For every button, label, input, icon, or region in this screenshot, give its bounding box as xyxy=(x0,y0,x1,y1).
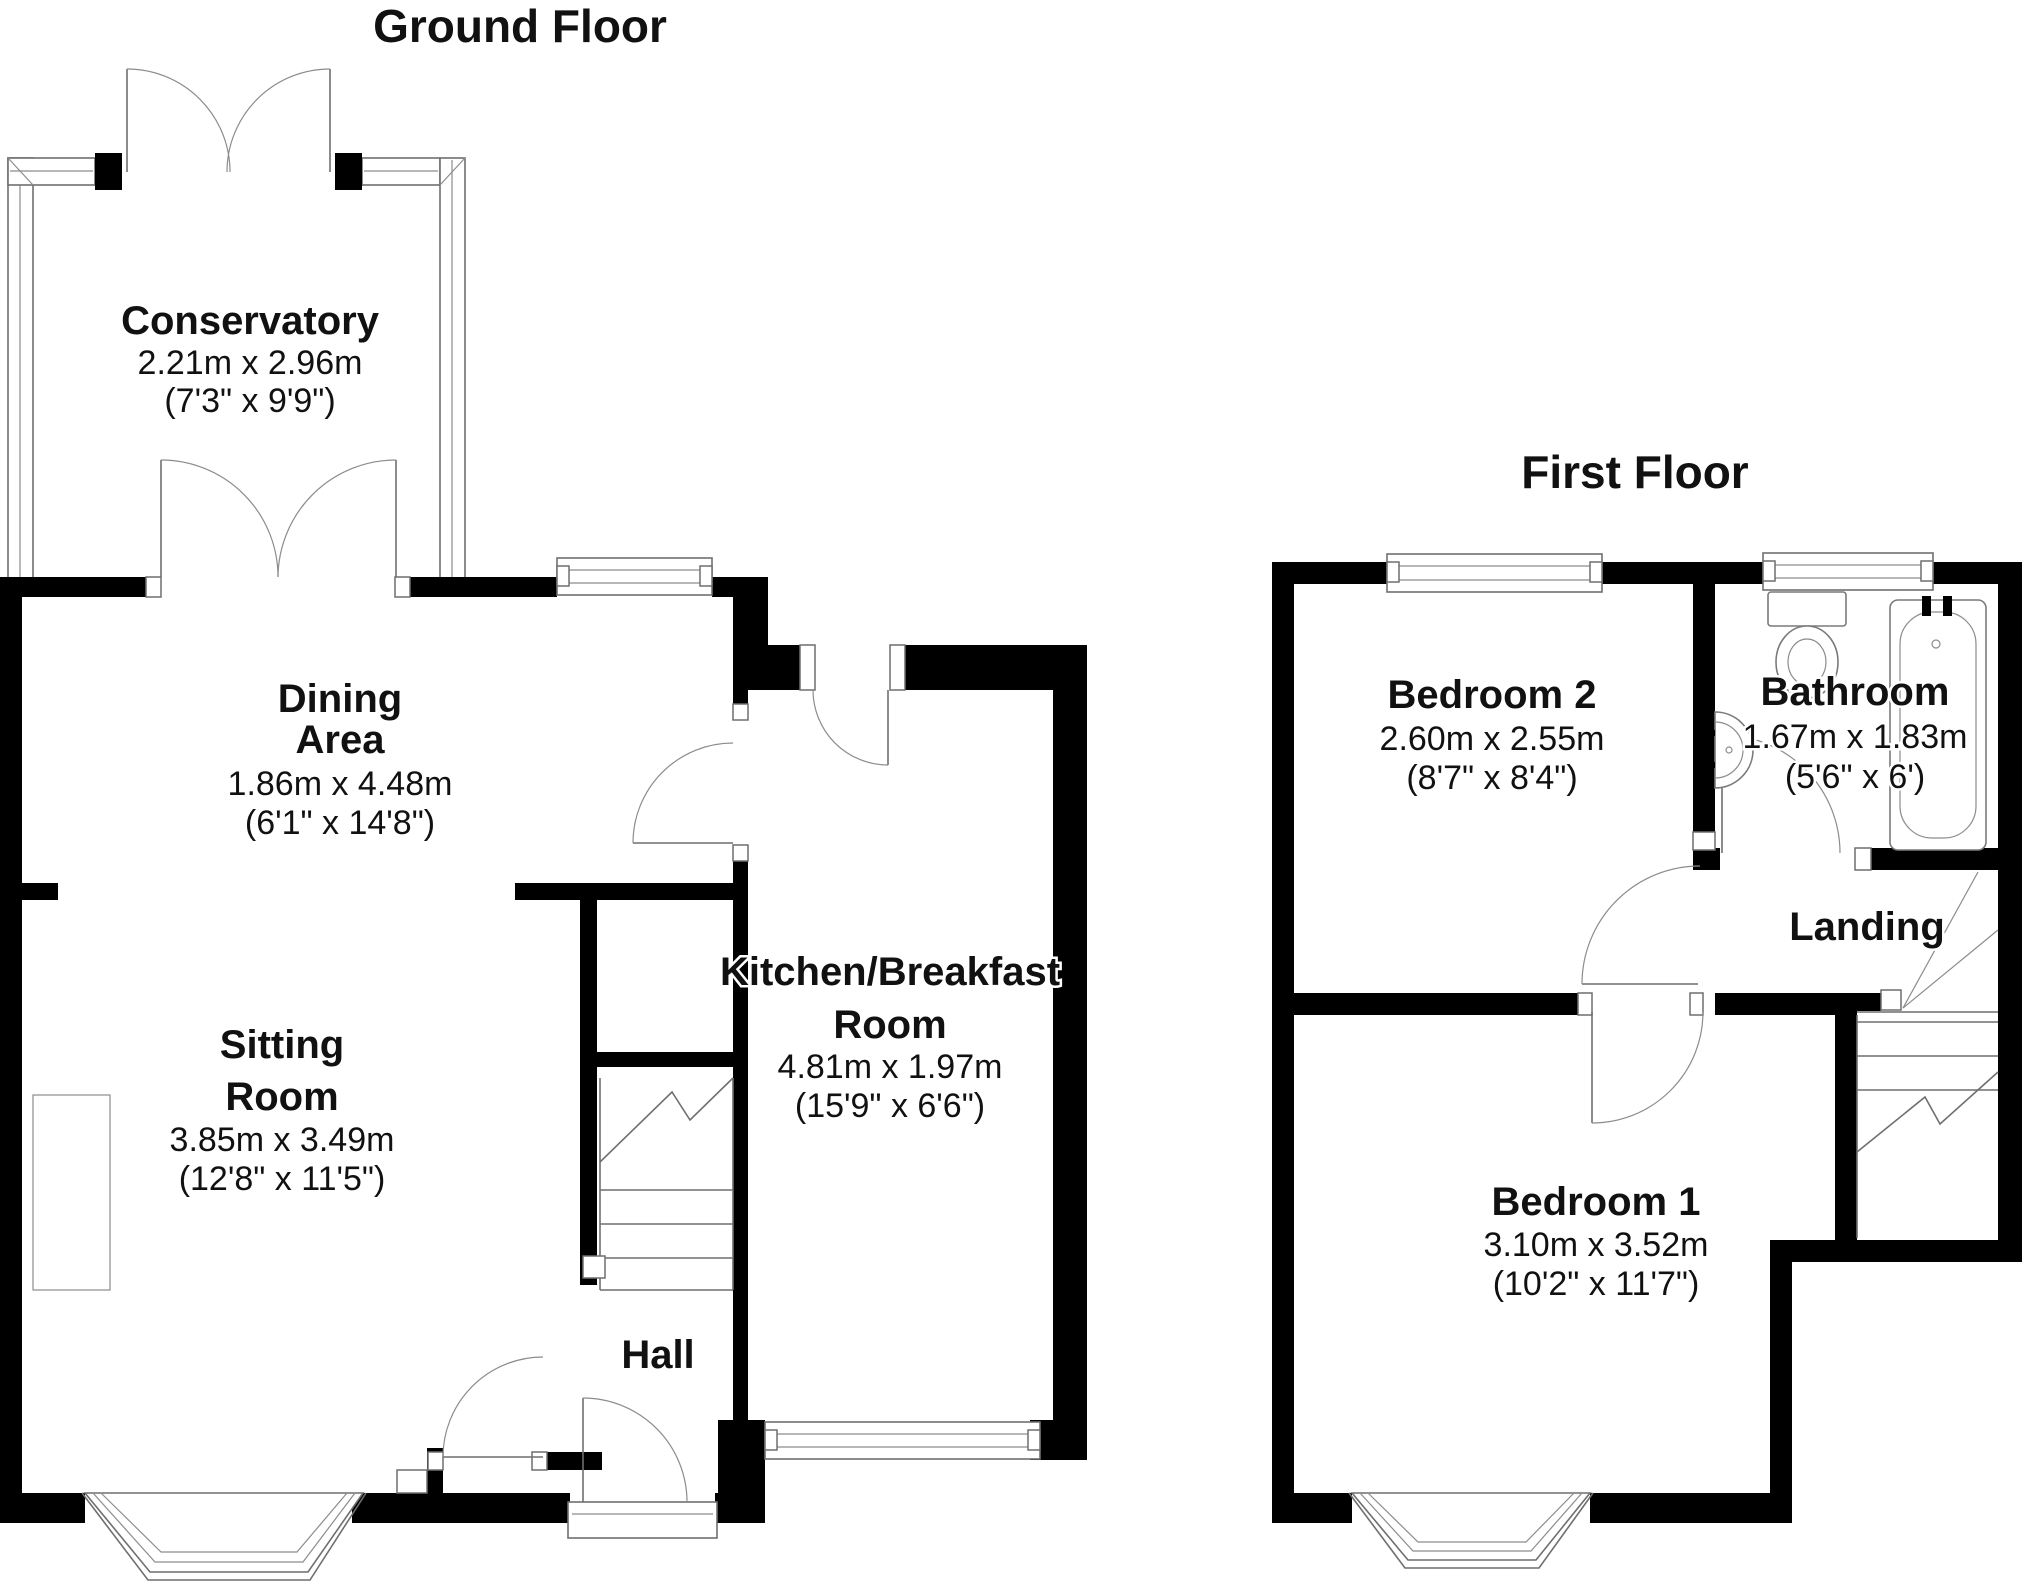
dining-window xyxy=(557,558,712,595)
sitting-room-label-line2: Room xyxy=(225,1075,338,1119)
bedroom1-imperial: (10'2" x 11'7") xyxy=(1493,1265,1700,1303)
bedroom2-imperial: (8'7" x 8'4") xyxy=(1406,759,1577,797)
kitchen-label-line2: Room xyxy=(833,1003,946,1047)
divider-jamb xyxy=(1693,832,1715,850)
bay-window-first xyxy=(1349,1493,1593,1568)
sitting-room-imperial: (12'8" x 11'5") xyxy=(179,1160,386,1198)
bedroom2-metric: 2.60m x 2.55m xyxy=(1380,720,1605,758)
bedroom-door-jamb-left xyxy=(1578,993,1592,1015)
kitchen-rear-door xyxy=(800,645,905,765)
sitting-room-recess xyxy=(33,1095,110,1290)
first-floor-plan: First Floor xyxy=(1272,446,2022,1568)
bedroom2-door xyxy=(1582,866,1700,984)
conservatory-metric: 2.21m x 2.96m xyxy=(138,344,363,382)
kitchen-door xyxy=(633,704,748,861)
floorplan-canvas: Ground Floor Conservatory 2.21m x 2. xyxy=(0,0,2025,1595)
bedroom1-metric: 3.10m x 3.52m xyxy=(1484,1226,1709,1264)
conservatory-imperial: (7'3" x 9'9") xyxy=(164,382,335,420)
bedroom1-label: Bedroom 1 xyxy=(1492,1180,1701,1224)
first-floor-title: First Floor xyxy=(1521,446,1749,498)
bedroom1-door xyxy=(1592,1012,1703,1123)
sitting-room-label-line1: Sitting xyxy=(220,1023,344,1067)
ground-floor-title: Ground Floor xyxy=(373,0,667,52)
bedroom2-window xyxy=(1387,554,1602,592)
kitchen-imperial: (15'9" x 6'6") xyxy=(795,1087,985,1125)
dining-area-label-line1: Dining xyxy=(278,677,402,721)
bedroom-door-jamb-right xyxy=(1690,993,1703,1015)
sitting-room-door xyxy=(397,1357,547,1493)
kitchen-label-line1: Kitchen/Breakfast xyxy=(720,950,1060,994)
landing-label: Landing xyxy=(1789,905,1945,949)
bay-window-ground xyxy=(82,1493,366,1580)
dining-area-imperial: (6'1" x 14'8") xyxy=(245,804,435,842)
hall-label: Hall xyxy=(621,1333,694,1377)
conservatory-label: Conservatory xyxy=(121,299,380,343)
staircase-ground xyxy=(583,1078,733,1290)
bathroom-label: Bathroom xyxy=(1761,670,1950,714)
ground-floor-plan: Ground Floor Conservatory 2.21m x 2. xyxy=(0,0,1087,1580)
conservatory-dining-double-door xyxy=(146,460,410,597)
bathroom-window xyxy=(1763,553,1933,590)
bathroom-door-jamb xyxy=(1855,848,1871,870)
conservatory-exterior-double-door xyxy=(127,69,330,172)
sitting-room-metric: 3.85m x 3.49m xyxy=(170,1121,395,1159)
dining-area-metric: 1.86m x 4.48m xyxy=(228,765,453,803)
bathroom-metric: 1.67m x 1.83m xyxy=(1743,718,1968,756)
dining-area-label-line2: Area xyxy=(296,718,386,762)
bedroom2-label: Bedroom 2 xyxy=(1388,673,1597,717)
bathroom-imperial: (5'6" x 6') xyxy=(1785,758,1925,796)
kitchen-metric: 4.81m x 1.97m xyxy=(778,1048,1003,1086)
floorplan-page: Ground Floor Conservatory 2.21m x 2. xyxy=(0,0,2025,1595)
kitchen-window xyxy=(765,1422,1040,1459)
